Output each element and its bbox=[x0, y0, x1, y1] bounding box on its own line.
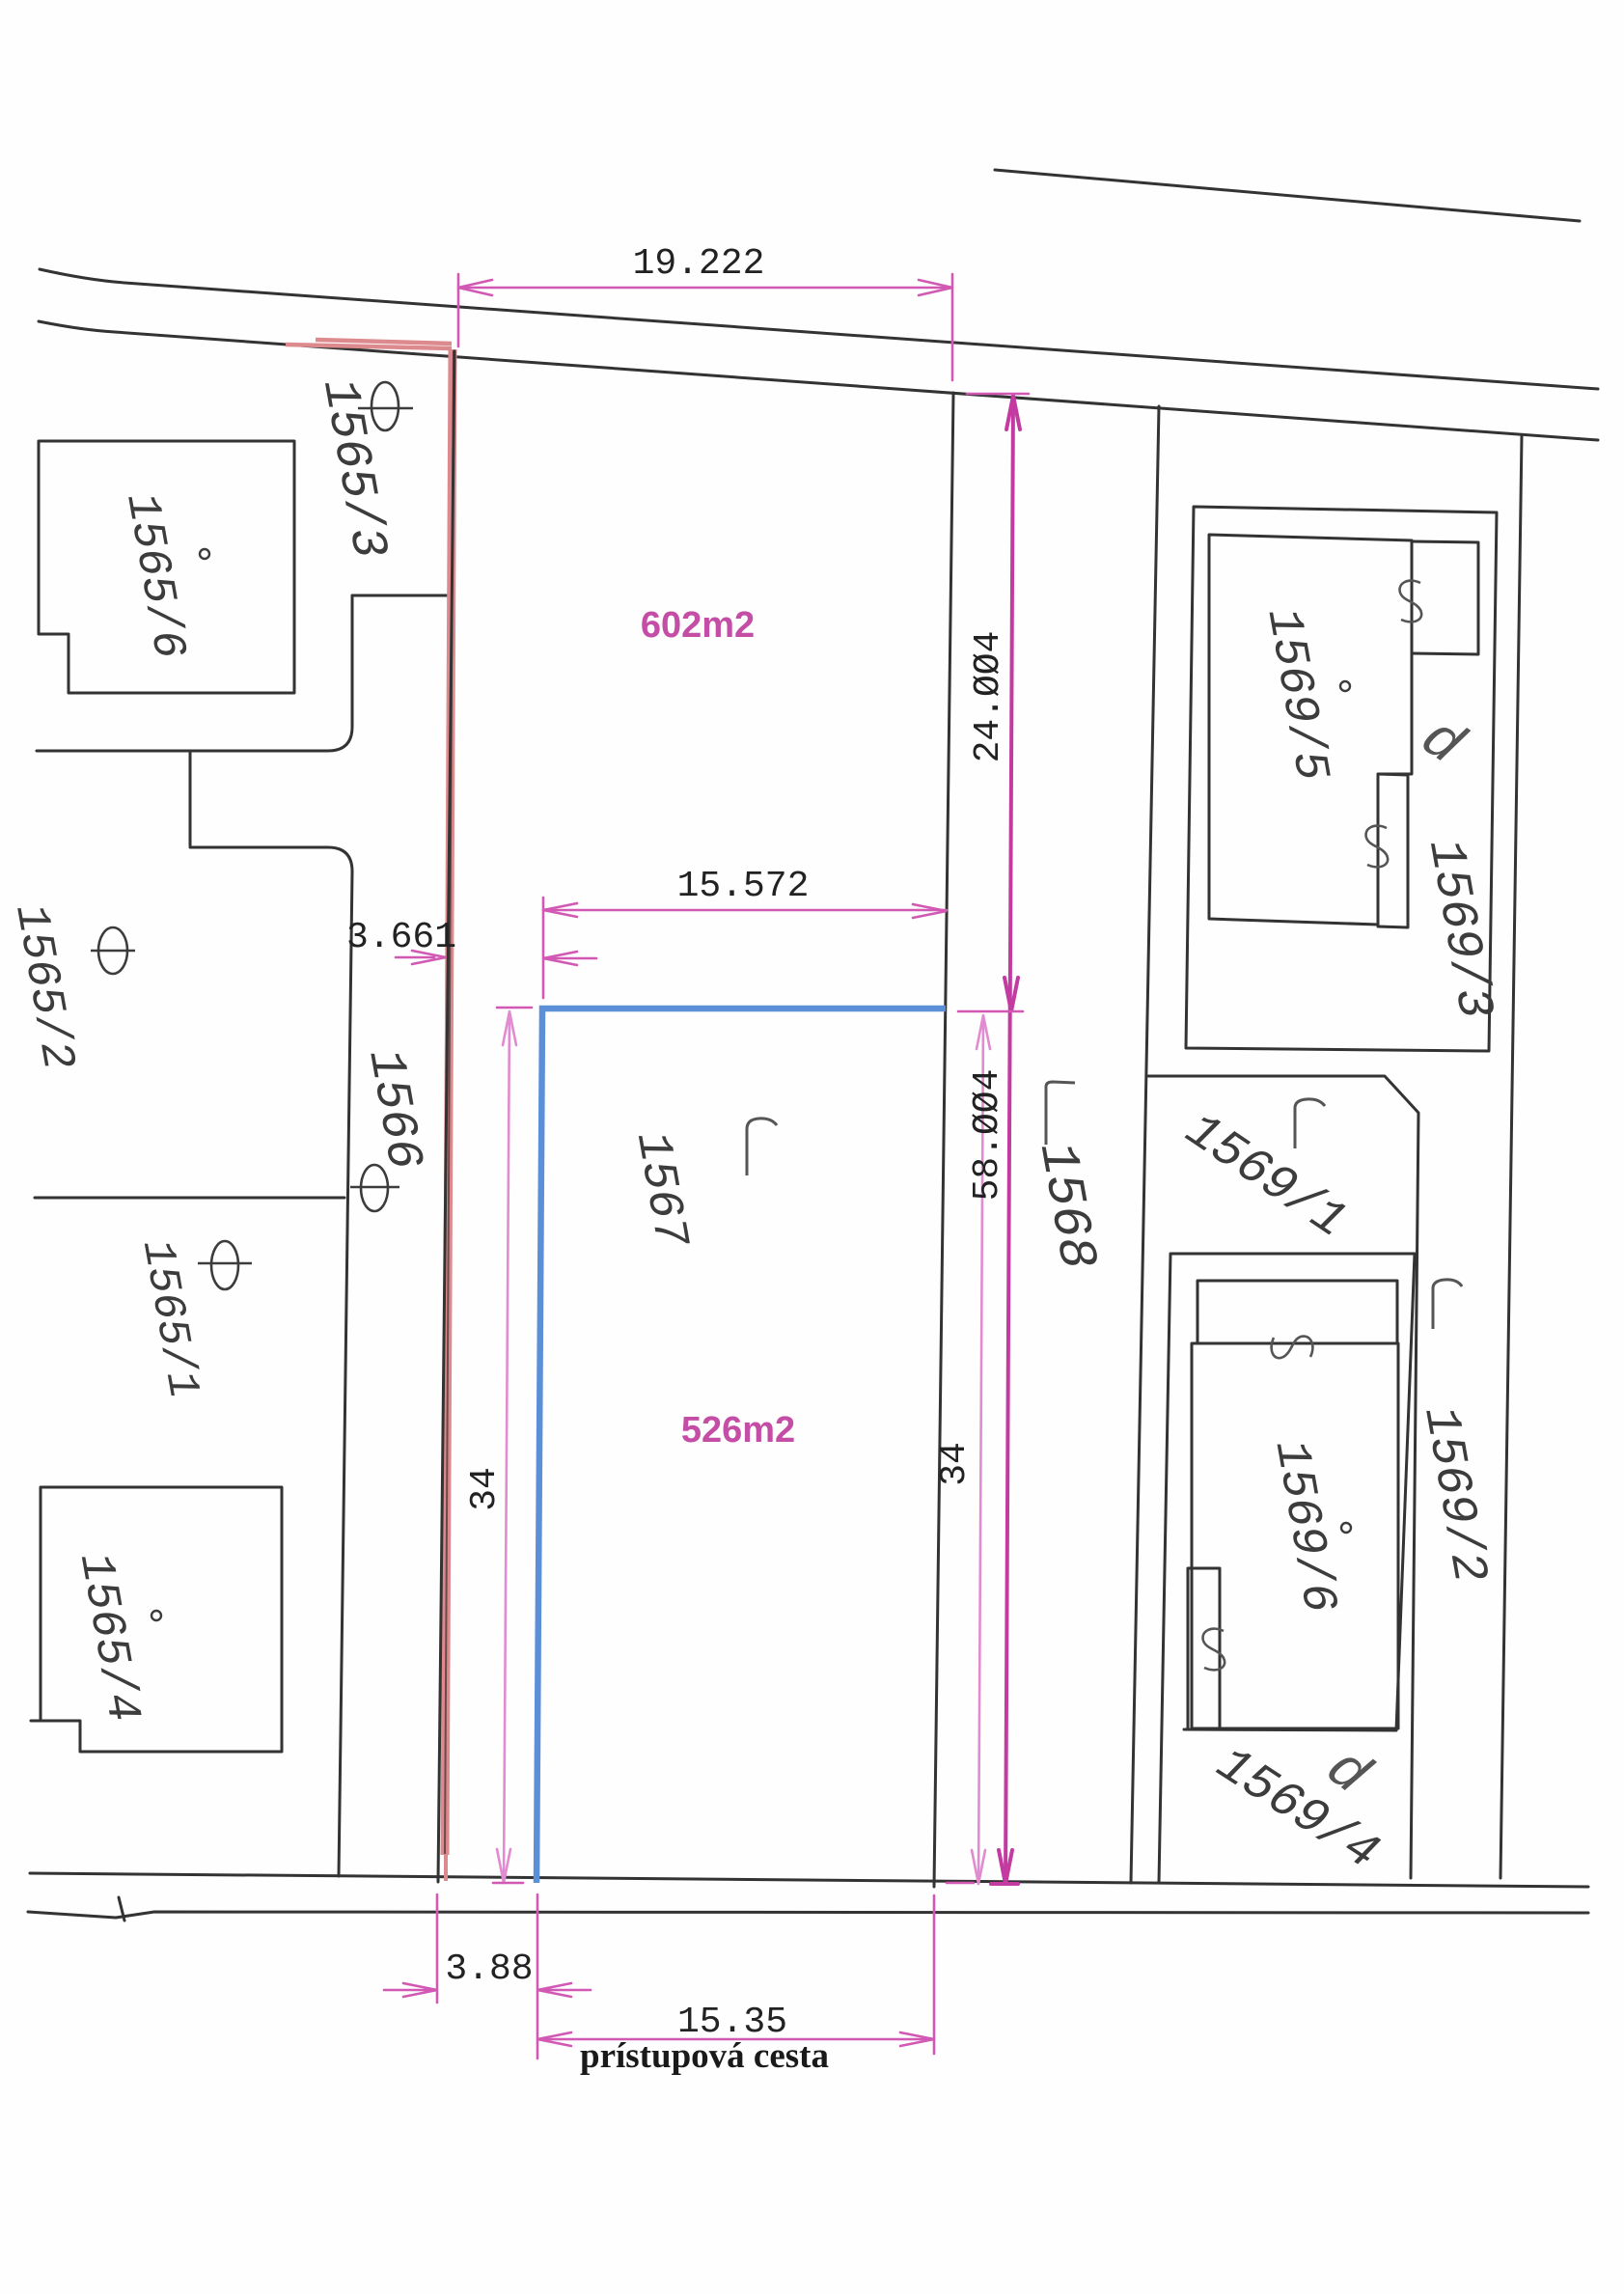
svg-text:34: 34 bbox=[464, 1467, 506, 1511]
svg-text:34: 34 bbox=[934, 1442, 976, 1486]
svg-text:19.222: 19.222 bbox=[633, 243, 765, 285]
svg-text:526m2: 526m2 bbox=[681, 1410, 795, 1451]
svg-text:3.661: 3.661 bbox=[346, 917, 456, 958]
svg-text:58.ØØ4: 58.ØØ4 bbox=[967, 1069, 1008, 1202]
svg-text:3.88: 3.88 bbox=[445, 1949, 533, 1990]
svg-text:24.ØØ4: 24.ØØ4 bbox=[968, 631, 1009, 763]
svg-text:prístupová cesta: prístupová cesta bbox=[580, 2036, 829, 2076]
svg-text:15.572: 15.572 bbox=[677, 866, 810, 907]
svg-text:602m2: 602m2 bbox=[641, 605, 755, 646]
